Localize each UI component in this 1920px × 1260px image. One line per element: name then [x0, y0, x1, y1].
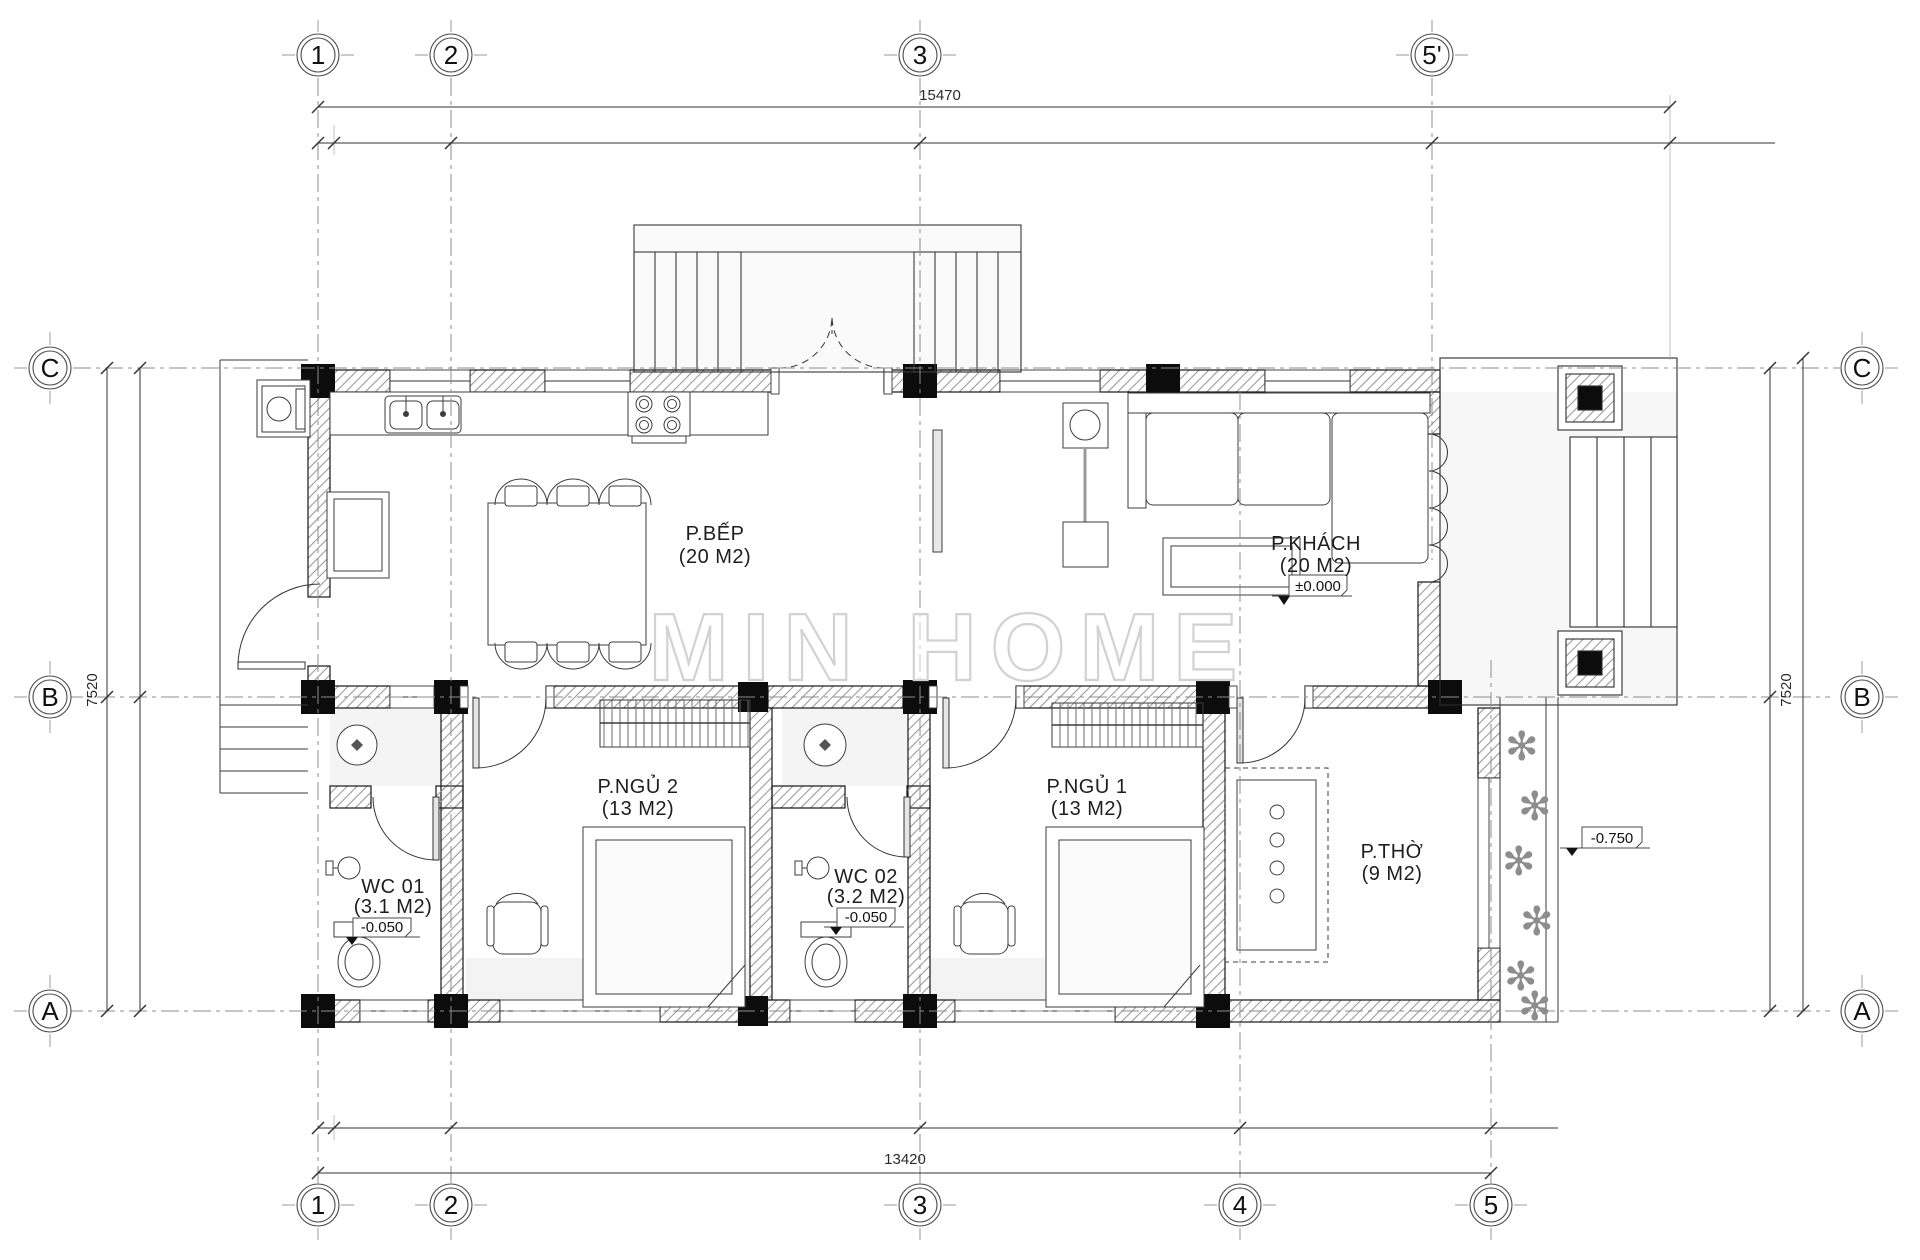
- washing-machine-icon: [257, 380, 310, 437]
- plant-icon: ✻: [1518, 985, 1552, 1029]
- wardrobe: [600, 700, 750, 747]
- room-label-wc1: WC 01: [361, 876, 425, 898]
- room-area-bedroom1: (13 M2): [1051, 798, 1123, 820]
- room-area-wc1: (3.1 M2): [354, 896, 432, 918]
- svg-text:5: 5: [1484, 1190, 1498, 1220]
- dimension-right: 7520: [1778, 673, 1795, 706]
- grid-bubble-bottom-1: 1: [297, 1184, 339, 1226]
- grid-bubble-top-1: 1: [297, 34, 339, 76]
- bench: [1570, 437, 1677, 627]
- window: [545, 370, 630, 392]
- window: [1000, 370, 1100, 392]
- svg-text:5': 5': [1422, 40, 1441, 70]
- plant-icon: ✻: [1520, 900, 1554, 944]
- grid-bubble-right-A: A: [1841, 990, 1883, 1032]
- svg-text:A: A: [1853, 996, 1871, 1026]
- wc1-door: [373, 797, 439, 860]
- svg-text:C: C: [41, 353, 60, 383]
- window: [1478, 778, 1500, 948]
- wardrobe: [1052, 703, 1203, 747]
- level-marker-terrace: -0.750: [1560, 827, 1650, 856]
- room-area-bedroom2: (13 M2): [602, 798, 674, 820]
- sink-icon: [385, 396, 461, 433]
- fridge-inner: [334, 499, 382, 571]
- room-label-kitchen: P.BẾP: [686, 522, 745, 545]
- room-area-wc2: (3.2 M2): [827, 886, 905, 908]
- grid-bubble-top-5p: 5': [1411, 34, 1453, 76]
- grid-bubble-left-A: A: [29, 990, 71, 1032]
- room-label-wc2: WC 02: [834, 866, 898, 888]
- svg-text:A: A: [41, 996, 59, 1026]
- svg-text:-0.750: -0.750: [1591, 830, 1634, 847]
- grid-bubble-top-3: 3: [899, 34, 941, 76]
- grid-bubble-bottom-2: 2: [430, 1184, 472, 1226]
- room-label-living: P.KHÁCH: [1271, 532, 1361, 555]
- svg-text:4: 4: [1233, 1190, 1247, 1220]
- chair-symbol: [487, 893, 548, 954]
- basin-icon: [326, 857, 360, 879]
- dimension-bottom: 13420: [884, 1151, 926, 1168]
- left-porch: [220, 360, 310, 793]
- dining-table: [488, 479, 651, 669]
- svg-text:B: B: [41, 682, 58, 712]
- grid-bubble-right-B: B: [1841, 676, 1883, 718]
- plant-icon: ✻: [1518, 785, 1552, 829]
- floor-plan-drawing: ✻ ✻ ✻ ✻ ✻ ✻: [0, 0, 1920, 1260]
- bedroom1-door: [943, 698, 1016, 768]
- grid-bubble-right-C: C: [1841, 347, 1883, 389]
- room-area-kitchen: (20 M2): [679, 546, 751, 568]
- plant-icon: ✻: [1505, 725, 1539, 769]
- grid-bubble-left-B: B: [29, 676, 71, 718]
- wc2-door: [847, 797, 910, 857]
- svg-text:-0.050: -0.050: [845, 909, 888, 926]
- window: [1265, 370, 1350, 392]
- grid-bubble-bottom-4: 4: [1219, 1184, 1261, 1226]
- chair-symbol: [954, 893, 1015, 954]
- bedroom2-door: [473, 698, 546, 768]
- dimension-top: 15470: [919, 87, 961, 104]
- floor-plan-sheet: ✻ ✻ ✻ ✻ ✻ ✻: [0, 0, 1920, 1260]
- dimension-left: 7520: [84, 673, 101, 706]
- stove-icon: [628, 392, 690, 443]
- planter-strip: ✻ ✻ ✻ ✻ ✻ ✻: [1500, 697, 1558, 1029]
- side-table: [1063, 403, 1108, 567]
- svg-text:2: 2: [444, 40, 458, 70]
- shower-icon: [804, 724, 846, 766]
- room-area-living: (20 M2): [1280, 555, 1352, 577]
- svg-text:1: 1: [311, 40, 325, 70]
- watermark: MIN HOME: [649, 594, 1252, 701]
- bed-symbol: [1046, 827, 1204, 1007]
- altar-room-door: [1237, 698, 1305, 763]
- room-area-altar: (9 M2): [1362, 863, 1423, 885]
- room-label-bedroom1: P.NGỦ 1: [1047, 774, 1128, 798]
- stairs: [220, 705, 308, 793]
- ornate-column: [1558, 631, 1622, 695]
- svg-text:±0.000: ±0.000: [1295, 578, 1341, 595]
- living-furniture: [933, 393, 1430, 595]
- shower-icon: [337, 725, 377, 765]
- window: [390, 370, 470, 392]
- svg-text:C: C: [1853, 353, 1872, 383]
- bed-symbol: [583, 827, 745, 1007]
- svg-text:3: 3: [913, 1190, 927, 1220]
- svg-text:1: 1: [311, 1190, 325, 1220]
- svg-text:B: B: [1853, 682, 1870, 712]
- grid-bubble-top-2: 2: [430, 34, 472, 76]
- svg-text:2: 2: [444, 1190, 458, 1220]
- grid-bubble-left-C: C: [29, 347, 71, 389]
- tv-icon: [933, 430, 942, 552]
- grid-bubble-bottom-5: 5: [1470, 1184, 1512, 1226]
- basin-icon: [795, 857, 829, 879]
- plant-icon: ✻: [1502, 840, 1536, 884]
- svg-text:3: 3: [913, 40, 927, 70]
- room-label-altar: P.THỜ: [1361, 840, 1424, 863]
- ornate-column: [1558, 366, 1622, 430]
- grid-bubble-bottom-3: 3: [899, 1184, 941, 1226]
- room-label-bedroom2: P.NGỦ 2: [598, 774, 679, 798]
- toilet-icon: [801, 922, 851, 987]
- svg-text:-0.050: -0.050: [361, 919, 404, 936]
